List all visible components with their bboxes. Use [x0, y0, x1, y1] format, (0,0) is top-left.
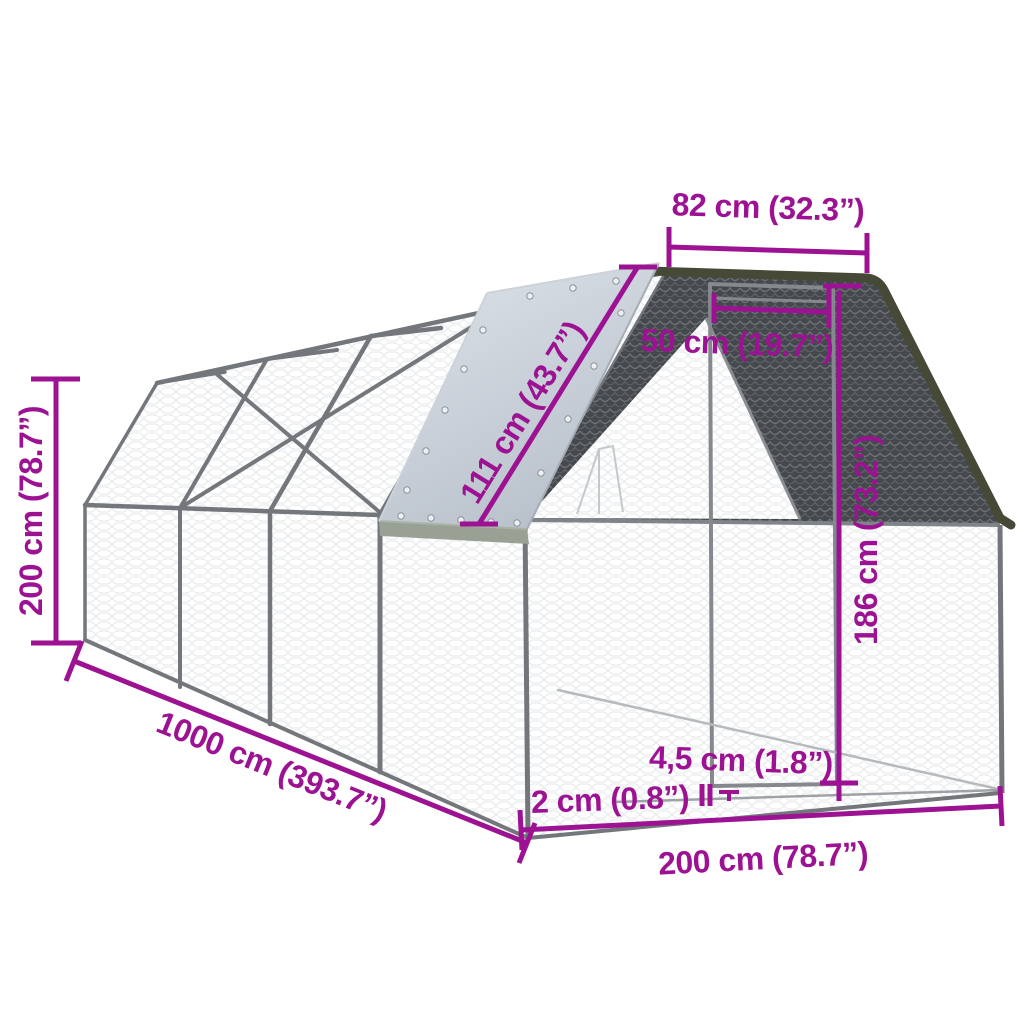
label-frame-tube: 4,5 cm (1.8”): [649, 739, 834, 781]
door-bottom-rail: [712, 784, 837, 786]
label-door-height: 186 cm (73.2”): [848, 435, 884, 645]
dim-roof-top-width: [669, 227, 867, 273]
label-roof-top-width: 82 cm (32.3”): [671, 186, 865, 228]
label-width: 200 cm (78.7”): [657, 835, 869, 882]
end-corner-post: [1000, 525, 1002, 793]
diagram-canvas: 82 cm (32.3”) 50 cm (19.7”) 111 cm (43.7…: [0, 0, 1024, 1024]
label-door-width: 50 cm (19.7”): [640, 322, 834, 365]
label-ground-clearance: 2 cm (0.8”): [530, 778, 689, 819]
chicken-run-dimension-illustration: 82 cm (32.3”) 50 cm (19.7”) 111 cm (43.7…: [0, 0, 1024, 1024]
label-height: 200 cm (78.7”): [13, 406, 49, 616]
